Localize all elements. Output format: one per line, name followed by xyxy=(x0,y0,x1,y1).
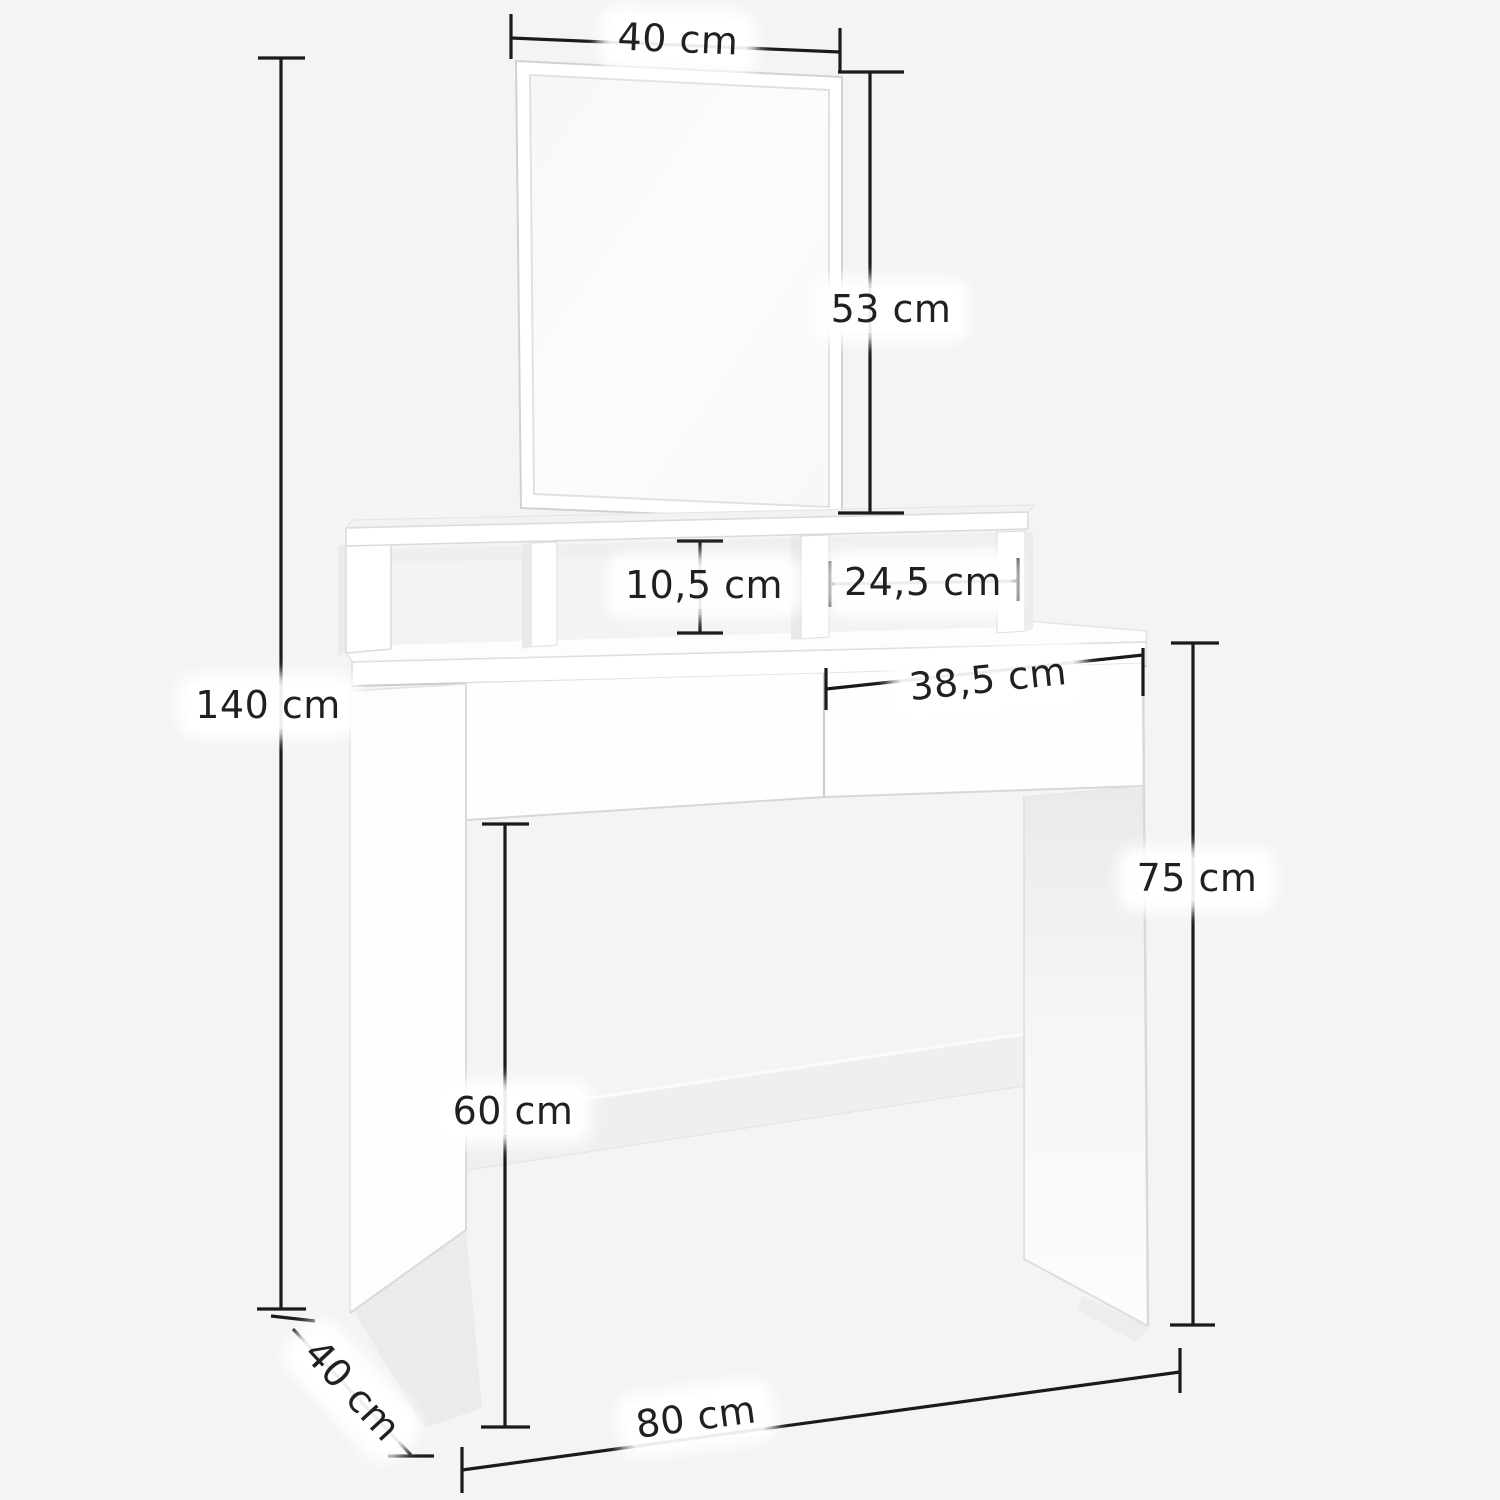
mirror-glass xyxy=(530,75,829,507)
hutch-divider-a-side xyxy=(522,543,531,649)
side-panel-left xyxy=(350,684,466,1313)
diagram-stage: 40 cm 53 cm 140 cm 10,5 cm 24,5 cm 38,5 … xyxy=(0,0,1500,1500)
mirror xyxy=(516,61,842,521)
dim-label-leg-room-height: 60 cm xyxy=(444,1089,583,1135)
hutch-divider-a xyxy=(531,542,557,647)
hutch-divider-b xyxy=(801,535,829,639)
drawer-left xyxy=(466,673,824,820)
hutch-divider-b-side xyxy=(791,536,801,640)
dim-label-mirror-height: 53 cm xyxy=(822,287,961,333)
dim-label-niche-width: 24,5 cm xyxy=(835,560,1011,606)
hutch-right-pillar-side xyxy=(1025,531,1033,631)
dim-label-mirror-width: 40 cm xyxy=(608,14,749,66)
side-panel-left-face xyxy=(350,684,466,1313)
dim-label-total-height: 140 cm xyxy=(186,683,350,729)
hutch-left-pillar xyxy=(346,543,391,653)
hutch-left-pillar-side xyxy=(338,545,346,656)
dim-label-niche-height: 10,5 cm xyxy=(616,563,792,609)
dim-label-table-height: 75 cm xyxy=(1128,856,1267,902)
furniture-illustration xyxy=(0,0,1500,1500)
